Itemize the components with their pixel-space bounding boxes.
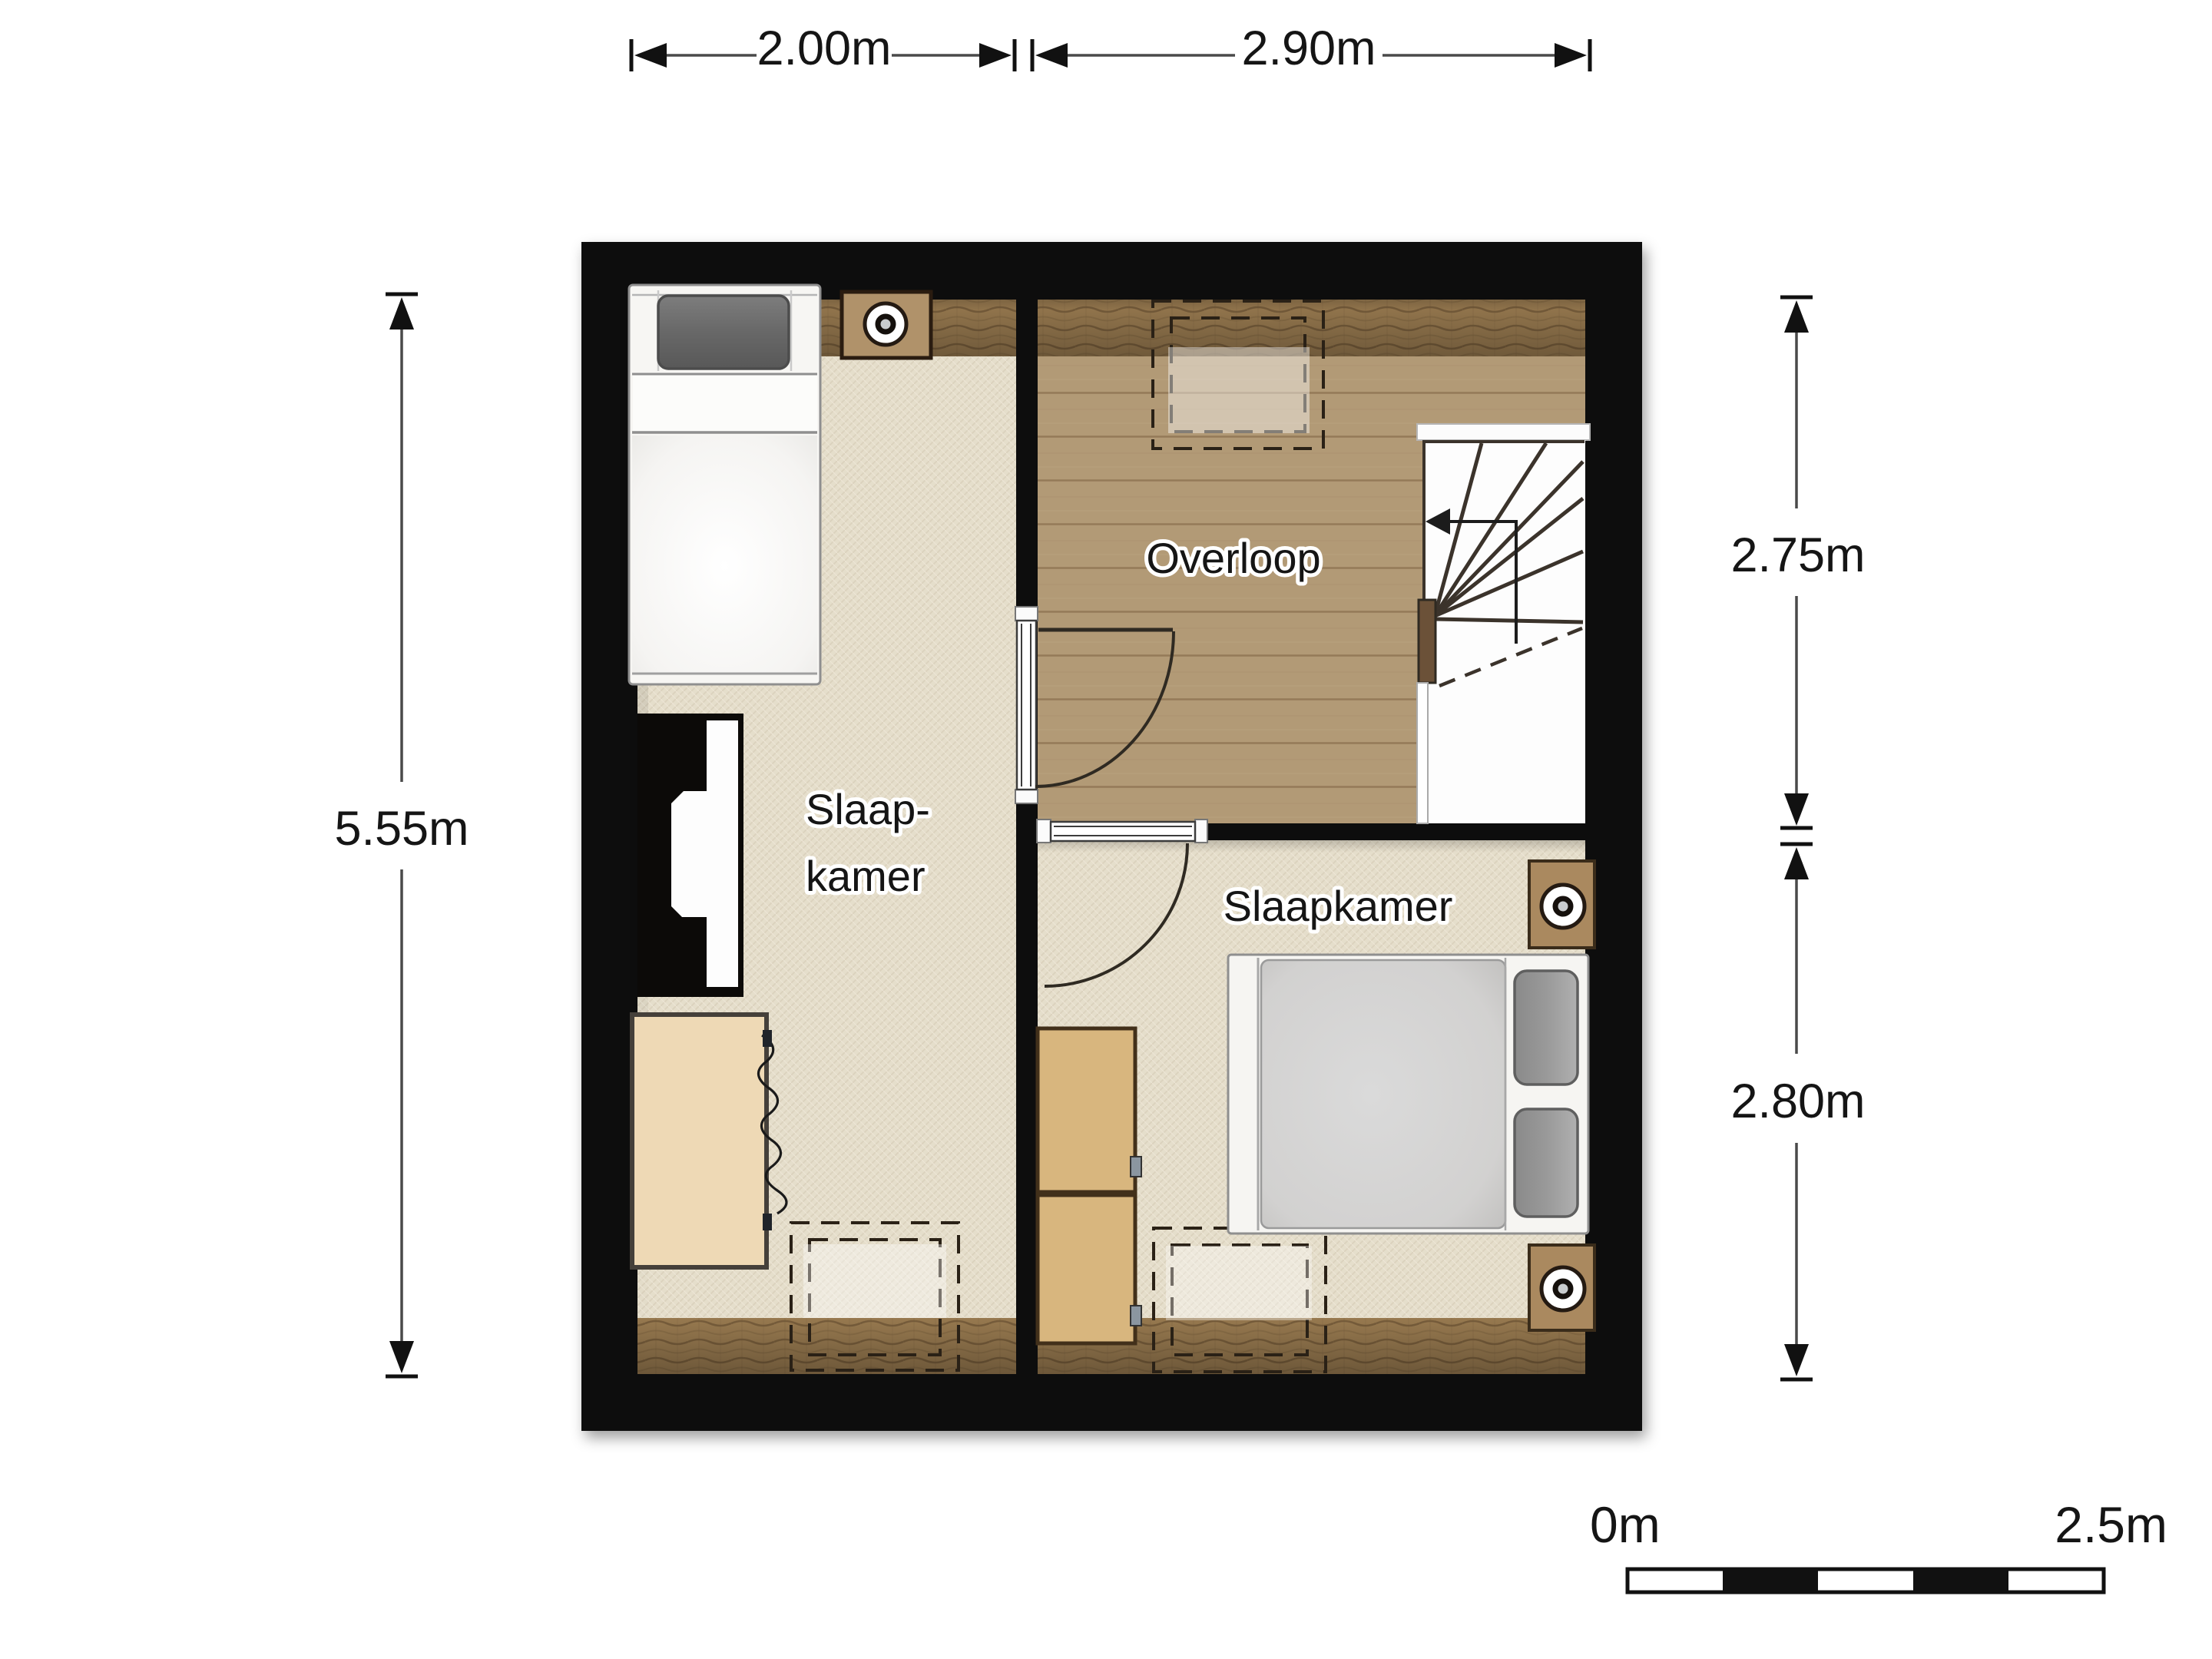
- svg-text:Slaap-: Slaap-: [806, 785, 930, 833]
- svg-text:Overloop: Overloop: [1146, 534, 1320, 582]
- svg-text:2.5m: 2.5m: [2055, 1496, 2167, 1553]
- svg-text:kamer: kamer: [806, 852, 926, 900]
- svg-text:5.55m: 5.55m: [334, 802, 469, 856]
- svg-text:2.00m: 2.00m: [757, 22, 891, 75]
- svg-text:0m: 0m: [1590, 1496, 1661, 1553]
- svg-text:Slaapkamer: Slaapkamer: [1224, 882, 1453, 930]
- svg-text:2.75m: 2.75m: [1730, 528, 1865, 582]
- svg-text:2.80m: 2.80m: [1730, 1075, 1865, 1128]
- svg-text:2.90m: 2.90m: [1241, 22, 1376, 75]
